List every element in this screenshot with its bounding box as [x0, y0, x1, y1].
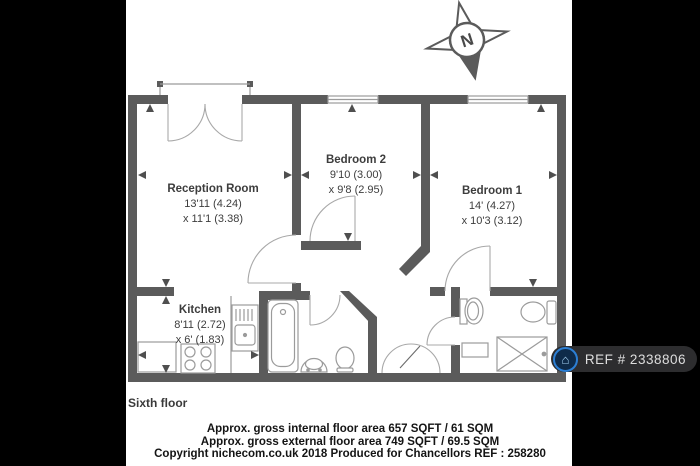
- house-icon: ⌂: [553, 347, 578, 372]
- shower-icon: [497, 337, 547, 371]
- door-bedroom1: [445, 246, 490, 291]
- bathroom-toilet-icon: [336, 347, 354, 372]
- door-closet-right: [411, 344, 440, 373]
- room-label-bedroom2: Bedroom 2 9'10 (3.00) x 9'8 (2.95): [326, 153, 386, 198]
- letterbox-left: [0, 0, 126, 466]
- door-bathroom: [310, 295, 340, 325]
- bathtub-icon: [268, 300, 298, 372]
- ensuite-basin-icon: [460, 298, 483, 324]
- door-leaf-hall: [400, 346, 420, 368]
- ref-number: REF # 2338806: [585, 352, 686, 367]
- room-label-reception: Reception Room 13'11 (4.24) x 11'1 (3.38…: [167, 182, 258, 227]
- letterbox-right: [572, 0, 700, 466]
- room-label-bedroom1: Bedroom 1 14' (4.27) x 10'3 (3.12): [462, 184, 523, 229]
- floor-label: Sixth floor: [128, 396, 187, 410]
- floorplan-page: { "compass": { "label": "N" }, "rooms": …: [0, 0, 700, 466]
- door-reception: [248, 235, 296, 283]
- room-label-kitchen: Kitchen 8'11 (2.72) x 6' (1.83): [174, 303, 225, 348]
- kitchen-hob-icon: [181, 344, 215, 373]
- kitchen-sink-icon: [232, 305, 258, 351]
- bathroom-basin-icon: [301, 359, 327, 373]
- door-ensuite: [427, 317, 455, 345]
- ref-badge: ⌂ REF # 2338806: [551, 346, 697, 372]
- ensuite-toilet-icon: [521, 301, 556, 324]
- north-compass-icon: N: [419, 0, 515, 87]
- windows-layer: [160, 84, 528, 104]
- door-closet-left: [382, 344, 411, 373]
- shelf: [462, 343, 488, 357]
